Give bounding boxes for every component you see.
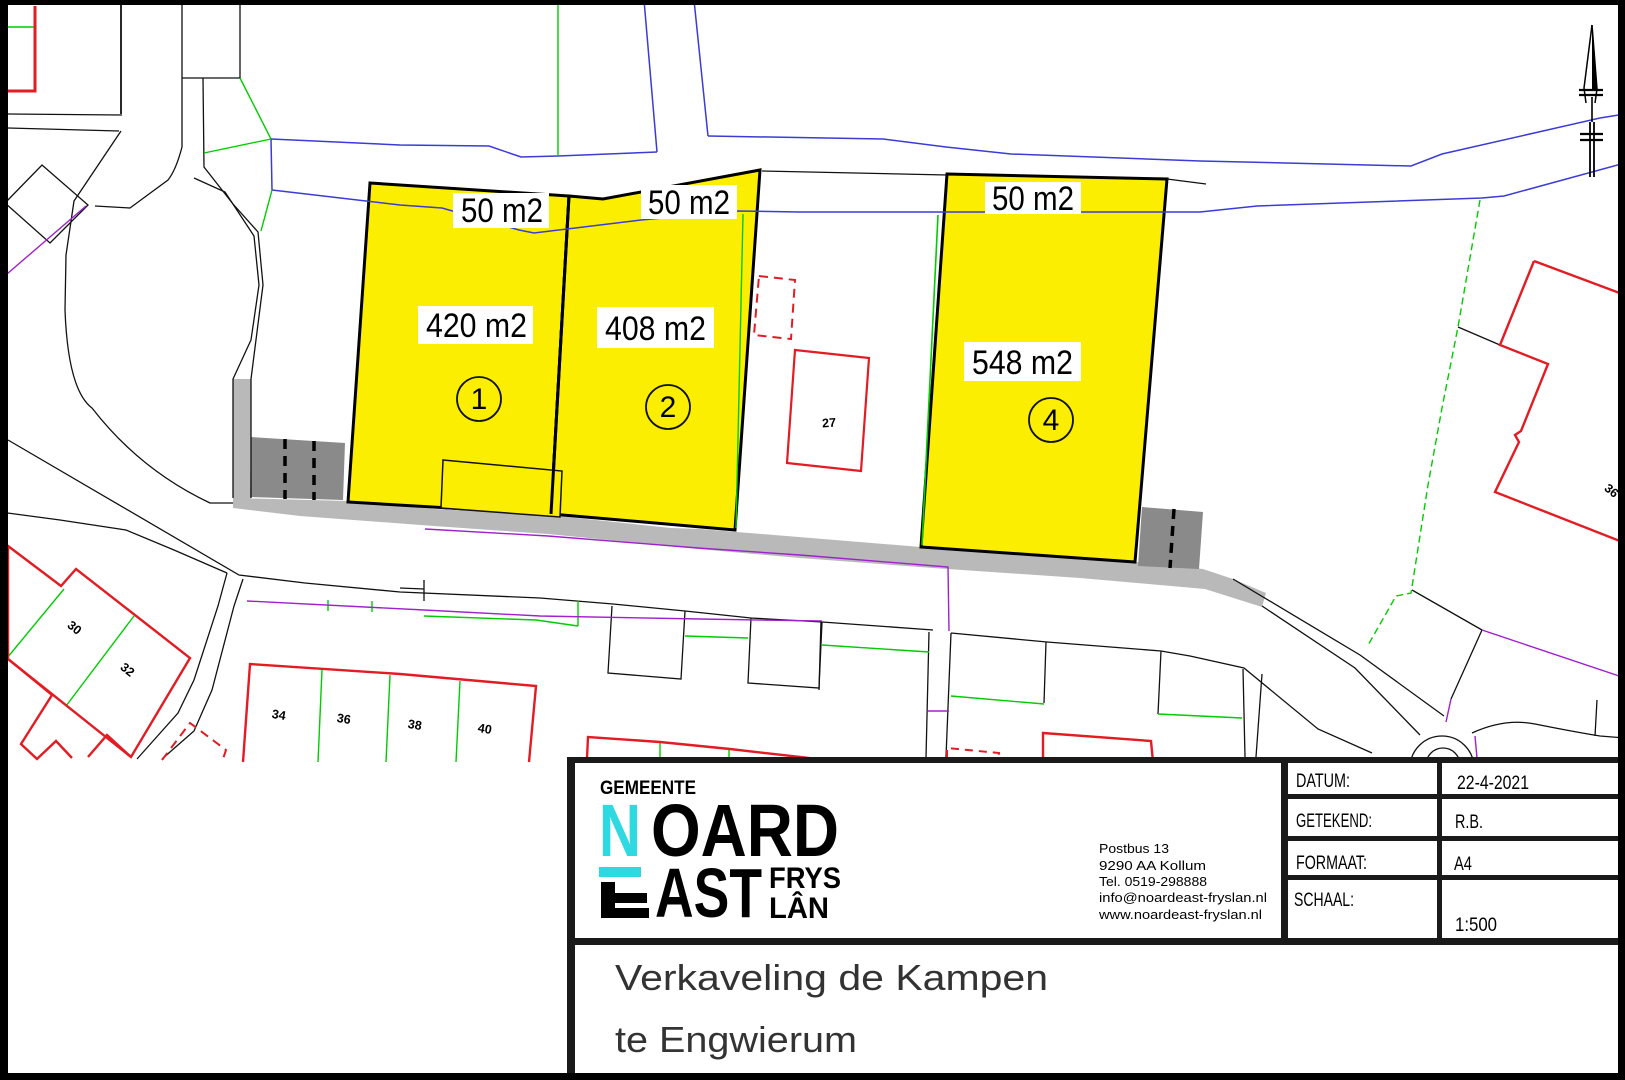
svg-text:50 m2: 50 m2 bbox=[992, 180, 1074, 218]
svg-text:FORMAAT:: FORMAAT: bbox=[1296, 853, 1367, 874]
svg-text:AST: AST bbox=[655, 854, 762, 932]
svg-text:22-4-2021: 22-4-2021 bbox=[1457, 773, 1529, 794]
svg-text:FRYS: FRYS bbox=[769, 862, 841, 895]
svg-text:9290 AA Kollum: 9290 AA Kollum bbox=[1099, 858, 1206, 873]
svg-text:34: 34 bbox=[271, 707, 287, 723]
svg-text:www.noardeast-fryslan.nl: www.noardeast-fryslan.nl bbox=[1098, 907, 1262, 922]
svg-text:50 m2: 50 m2 bbox=[461, 192, 543, 230]
svg-text:408 m2: 408 m2 bbox=[605, 310, 706, 348]
svg-text:N: N bbox=[599, 789, 641, 872]
svg-text:te Engwierum: te Engwierum bbox=[615, 1019, 857, 1060]
svg-text:A4: A4 bbox=[1454, 854, 1472, 875]
svg-text:GETEKEND:: GETEKEND: bbox=[1296, 811, 1372, 832]
svg-text:Tel. 0519-298888: Tel. 0519-298888 bbox=[1099, 874, 1207, 889]
svg-text:40: 40 bbox=[477, 721, 493, 737]
svg-text:4: 4 bbox=[1043, 404, 1060, 437]
svg-text:548 m2: 548 m2 bbox=[972, 344, 1073, 382]
svg-text:2: 2 bbox=[660, 391, 677, 424]
svg-text:Postbus 13: Postbus 13 bbox=[1099, 841, 1169, 856]
svg-text:27: 27 bbox=[822, 416, 837, 431]
svg-text:1: 1 bbox=[471, 383, 488, 416]
svg-text:1:500: 1:500 bbox=[1455, 915, 1497, 936]
svg-text:info@noardeast-fryslan.nl: info@noardeast-fryslan.nl bbox=[1099, 890, 1267, 905]
svg-text:SCHAAL:: SCHAAL: bbox=[1294, 890, 1354, 911]
svg-text:LÂN: LÂN bbox=[769, 891, 829, 925]
svg-text:R.B.: R.B. bbox=[1455, 812, 1483, 833]
svg-text:36: 36 bbox=[336, 711, 352, 727]
svg-text:DATUM:: DATUM: bbox=[1296, 771, 1350, 792]
svg-text:Verkaveling de Kampen: Verkaveling de Kampen bbox=[615, 957, 1048, 998]
svg-text:420 m2: 420 m2 bbox=[426, 307, 527, 345]
svg-text:50 m2: 50 m2 bbox=[648, 184, 730, 222]
svg-text:38: 38 bbox=[407, 717, 423, 733]
